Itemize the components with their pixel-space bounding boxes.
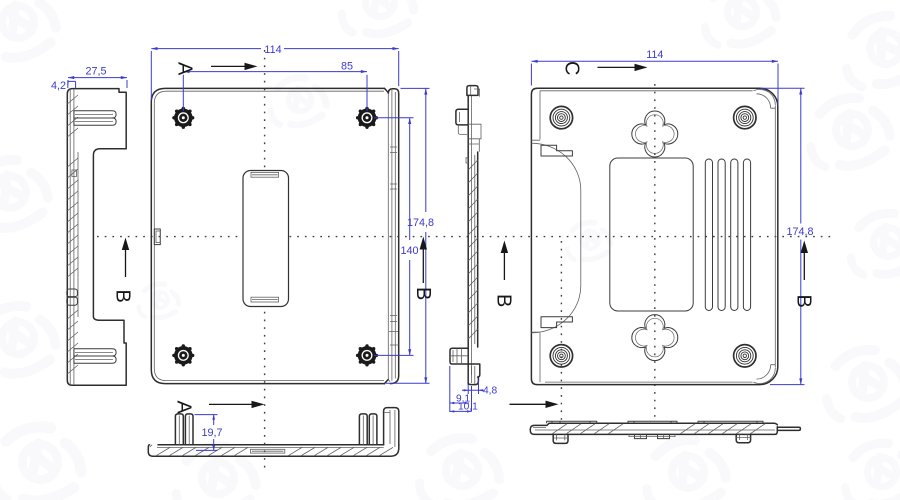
svg-text:4,2: 4,2 [51,80,66,92]
svg-text:B: B [493,294,515,307]
svg-text:174,8: 174,8 [786,226,813,238]
svg-text:140: 140 [400,245,418,257]
svg-text:B: B [793,295,815,308]
svg-text:4,8: 4,8 [483,385,497,396]
svg-text:174,8: 174,8 [407,217,434,229]
svg-text:10,1: 10,1 [458,402,478,413]
svg-text:A: A [173,401,195,415]
svg-text:19,7: 19,7 [201,427,222,439]
svg-text:A: A [174,62,196,76]
svg-text:B: B [412,287,434,300]
svg-text:27,5: 27,5 [85,66,106,78]
svg-text:C: C [561,61,583,75]
svg-text:114: 114 [646,49,663,61]
svg-text:85: 85 [341,60,353,72]
svg-text:114: 114 [264,44,281,56]
svg-text:B: B [112,290,134,303]
